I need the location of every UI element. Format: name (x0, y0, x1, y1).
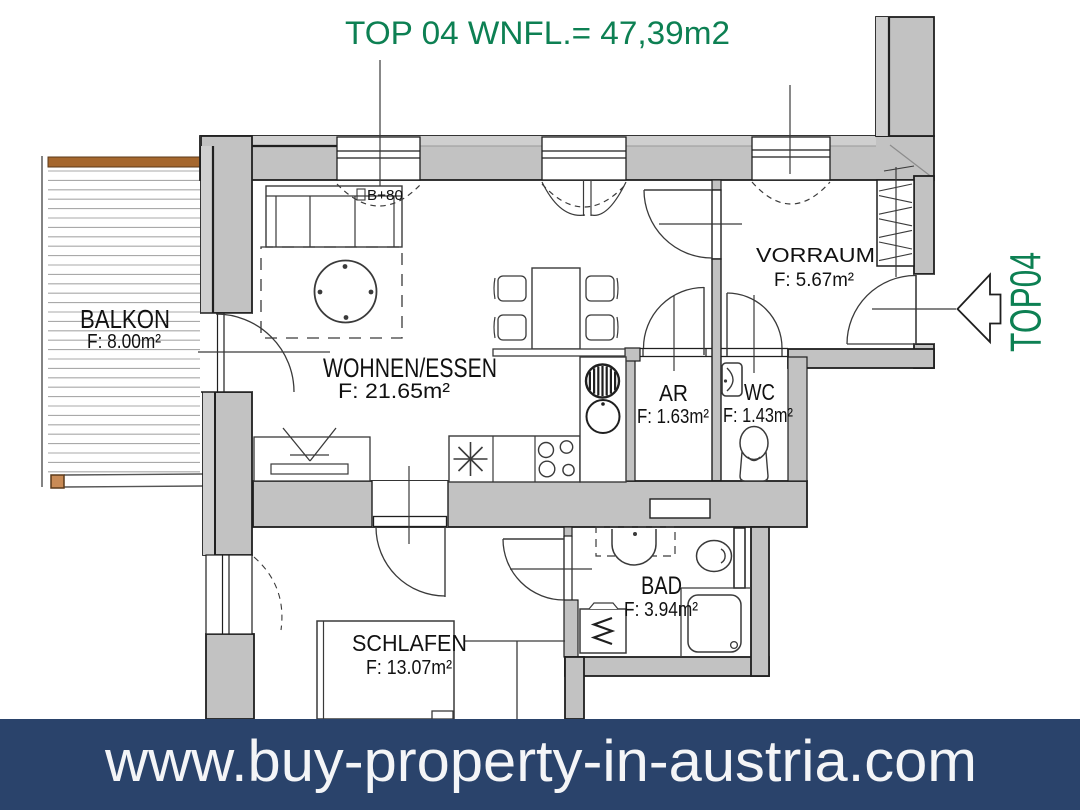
svg-text:WC: WC (744, 379, 775, 405)
svg-text:www.buy-property-in-austria.co: www.buy-property-in-austria.com (104, 729, 977, 794)
svg-text:BAD: BAD (641, 572, 682, 600)
svg-text:TOP 04 WNFL.= 47,39m2: TOP 04 WNFL.= 47,39m2 (345, 15, 730, 51)
svg-text:VORRAUM: VORRAUM (756, 245, 875, 267)
svg-text:F: 5.67m²: F: 5.67m² (774, 270, 854, 291)
svg-text:F: 8.00m²: F: 8.00m² (87, 331, 161, 353)
svg-text:F: 1.43m²: F: 1.43m² (723, 405, 793, 427)
svg-text:F: 13.07m²: F: 13.07m² (366, 657, 452, 679)
svg-text:WOHNEN/ESSEN: WOHNEN/ESSEN (323, 353, 497, 383)
svg-text:AR: AR (659, 380, 688, 406)
svg-text:F: 21.65m²: F: 21.65m² (338, 380, 450, 403)
svg-text:TOP04: TOP04 (1002, 252, 1051, 352)
svg-text:B+80: B+80 (367, 187, 403, 204)
svg-text:F: 3.94m²: F: 3.94m² (624, 599, 698, 621)
svg-text:SCHLAFEN: SCHLAFEN (352, 630, 467, 656)
svg-text:F: 1.63m²: F: 1.63m² (637, 406, 709, 428)
svg-text:BALKON: BALKON (80, 304, 170, 334)
